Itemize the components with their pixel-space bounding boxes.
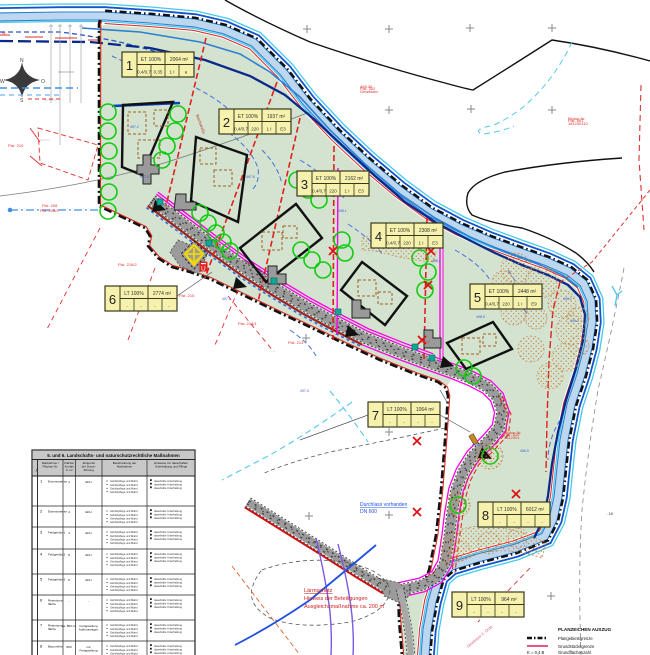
svg-text:Ausgleichsmaßnahme ca. 200 m: Ausgleichsmaßnahme ca. 200 m (304, 604, 385, 610)
svg-text:DN 600: DN 600 (360, 509, 377, 515)
svg-text:PLANZEICHEN AUSZUG: PLANZEICHEN AUSZUG (558, 627, 612, 632)
svg-text:Gehölzpflege und Mahd: Gehölzpflege und Mahd (110, 581, 138, 585)
svg-text:3: 3 (301, 177, 308, 192)
svg-text:dauerhafte Unterhaltung: dauerhafte Unterhaltung (154, 648, 183, 652)
svg-text:Gehölzpflege und Mahd: Gehölzpflege und Mahd (110, 602, 138, 606)
svg-text:1937 m²: 1937 m² (267, 114, 286, 120)
svg-text:EFH: EFH (86, 510, 92, 514)
svg-text:dauerhafte Unterhaltung: dauerhafte Unterhaltung (154, 577, 183, 581)
svg-text:1812301: 1812301 (504, 435, 520, 440)
svg-text:Gehölzpflege und Mahd: Gehölzpflege und Mahd (110, 630, 138, 634)
svg-text:Flächen-Nr.: Flächen-Nr. (42, 464, 58, 468)
svg-text:220: 220 (403, 241, 411, 246)
svg-text:964 m²: 964 m² (501, 597, 517, 603)
svg-text:Gehölzpflege und Mahd: Gehölzpflege und Mahd (110, 490, 138, 494)
svg-text:-: - (88, 599, 89, 603)
svg-text:Lärmschutz: Lärmschutz (304, 588, 333, 594)
svg-text:2064 m²: 2064 m² (170, 57, 189, 63)
svg-text:Gehölzpflege und Mahd: Gehölzpflege und Mahd (110, 584, 138, 588)
svg-text:Gehölzpflege und Mahd: Gehölzpflege und Mahd (110, 483, 138, 487)
svg-text:Gehölzpflege und Mahd: Gehölzpflege und Mahd (110, 609, 138, 613)
svg-text:497.5: 497.5 (140, 175, 149, 179)
svg-text:497.1: 497.1 (222, 297, 231, 301)
svg-text:EFH: EFH (86, 578, 92, 582)
svg-text:496.9: 496.9 (520, 449, 529, 453)
svg-text:LT 100%: LT 100% (471, 597, 491, 603)
svg-text:Hinweis der Beteiligungen: Hinweis der Beteiligungen (304, 596, 368, 602)
svg-text:498.1: 498.1 (338, 209, 347, 213)
svg-text:dauerhafte Unterhaltung: dauerhafte Unterhaltung (154, 486, 183, 490)
svg-text:Außenanlagen: Außenanlagen (79, 627, 99, 631)
svg-text:Gehölzpflege und Mahd: Gehölzpflege und Mahd (110, 530, 138, 534)
svg-text:2774 m²: 2774 m² (153, 291, 172, 297)
svg-text:Gehölzpflege und Mahd: Gehölzpflege und Mahd (110, 605, 138, 609)
svg-text:Grundflächenzahl: Grundflächenzahl (558, 650, 591, 655)
svg-text:N: N (20, 58, 24, 64)
svg-text:1 I: 1 I (418, 241, 423, 246)
svg-text:0,4/0,7: 0,4/0,7 (234, 127, 248, 132)
svg-text:ET 100%: ET 100% (489, 289, 510, 295)
svg-text:dauerhafte Unterhaltung: dauerhafte Unterhaltung (154, 644, 183, 648)
svg-text:Gehölzpflege und Mahd: Gehölzpflege und Mahd (110, 623, 138, 627)
svg-text:W: W (0, 79, 5, 85)
svg-text:1: 1 (126, 58, 133, 73)
svg-text:9: 9 (456, 598, 463, 613)
svg-text:Gehölzpflege und Mahd: Gehölzpflege und Mahd (110, 634, 138, 638)
svg-text:Plangebietsgrenze: Plangebietsgrenze (558, 636, 593, 641)
svg-text:E3: E3 (280, 127, 286, 132)
svg-text:Flst. 208: Flst. 208 (42, 203, 58, 208)
svg-text:Feldgehölz 3: Feldgehölz 3 (48, 578, 66, 582)
svg-text:Gehölzpflege und Mahd: Gehölzpflege und Mahd (110, 479, 138, 483)
svg-text:220: 220 (251, 127, 259, 132)
svg-text:fläche: fläche (48, 602, 56, 606)
svg-text:EFH: EFH (86, 531, 92, 535)
svg-text:EFH: EFH (86, 553, 92, 557)
svg-text:LT 100%: LT 100% (124, 291, 144, 297)
svg-text:Feldgehölz 1: Feldgehölz 1 (48, 531, 66, 535)
svg-text:ET 100%: ET 100% (316, 176, 337, 182)
svg-text:Bp: Bp (2, 31, 6, 35)
svg-text:dauerhafte Unterhaltung: dauerhafte Unterhaltung (154, 623, 183, 627)
svg-text:2308 m²: 2308 m² (419, 228, 438, 234)
svg-text:LT 100%: LT 100% (497, 507, 517, 513)
svg-text:E3: E3 (358, 189, 364, 194)
svg-text:Flst. 208/2: Flst. 208/2 (40, 208, 59, 213)
svg-text:Durchlass vorhanden: Durchlass vorhanden (360, 502, 407, 508)
svg-text:0,4/0,7: 0,4/0,7 (312, 189, 326, 194)
svg-text:-: - (69, 599, 70, 603)
svg-text:2162 m²: 2162 m² (345, 176, 364, 182)
svg-text:dauerhafte Unterhaltung: dauerhafte Unterhaltung (154, 559, 183, 563)
svg-text:Nr.: Nr. (35, 468, 39, 472)
svg-text:dauerhafte Unterhaltung: dauerhafte Unterhaltung (154, 537, 183, 541)
svg-text:Flst. 215: Flst. 215 (179, 293, 195, 298)
svg-text:Feldgehölz 2: Feldgehölz 2 (48, 553, 66, 557)
svg-text:1 I: 1 I (169, 70, 174, 75)
svg-text:EFH: EFH (86, 480, 92, 484)
svg-text:in m²: in m² (66, 468, 73, 472)
svg-text:dauerhafte Unterhaltung: dauerhafte Unterhaltung (154, 513, 183, 517)
svg-text:498.4: 498.4 (432, 259, 441, 263)
svg-text:6012 m²: 6012 m² (526, 507, 545, 513)
svg-text:ET 100%: ET 100% (390, 228, 411, 234)
svg-text:dauerhafte Unterhaltung: dauerhafte Unterhaltung (154, 509, 183, 513)
svg-text:führung: führung (84, 468, 95, 472)
svg-text:dauerhafte Unterhaltung: dauerhafte Unterhaltung (154, 627, 183, 631)
svg-text:0,35: 0,35 (154, 70, 163, 75)
svg-text:Maßnahme: Maßnahme (117, 464, 133, 468)
svg-text:E9: E9 (531, 302, 537, 307)
svg-text:7: 7 (372, 408, 379, 423)
svg-text:dauerhafte Unterhaltung: dauerhafte Unterhaltung (154, 552, 183, 556)
svg-text:fläche: fläche (48, 627, 56, 631)
svg-text:0,4/0,7: 0,4/0,7 (137, 70, 151, 75)
svg-text:499.2: 499.2 (563, 297, 572, 301)
svg-text:1 I: 1 I (344, 189, 349, 194)
svg-text:Gehölzpflege und Mahd: Gehölzpflege und Mahd (110, 556, 138, 560)
svg-text:Fertigstellung: Fertigstellung (79, 648, 97, 652)
svg-text:Gehölzpflege und Mahd: Gehölzpflege und Mahd (110, 598, 138, 602)
svg-text:2: 2 (223, 115, 230, 130)
svg-text:1064 m²: 1064 m² (416, 407, 435, 413)
svg-text:dauerhafte Unterhaltung: dauerhafte Unterhaltung (154, 598, 183, 602)
svg-text:O: O (41, 79, 45, 85)
svg-text:Flst. 213: Flst. 213 (288, 340, 304, 345)
svg-text:496.8: 496.8 (472, 443, 481, 447)
svg-text:Gehölzpflege und Mahd: Gehölzpflege und Mahd (110, 520, 138, 524)
svg-text:Gehölzpflege und Mahd: Gehölzpflege und Mahd (110, 627, 138, 631)
svg-text:ca. 850 m²: ca. 850 m² (62, 624, 76, 628)
svg-text:- 18: - 18 (606, 511, 614, 516)
svg-text:0,4/0,7: 0,4/0,7 (485, 302, 499, 307)
svg-text:dauerhafte Unterhaltung: dauerhafte Unterhaltung (154, 479, 183, 483)
svg-text:499.1: 499.1 (420, 339, 431, 344)
svg-text:Gehölzpflege und Mahd: Gehölzpflege und Mahd (110, 509, 138, 513)
svg-text:dauerhafte Unterhaltung: dauerhafte Unterhaltung (154, 530, 183, 534)
svg-text:1 I: 1 I (517, 302, 522, 307)
svg-text:498.9: 498.9 (476, 315, 485, 319)
svg-text:Gehölzpflege und Mahd: Gehölzpflege und Mahd (110, 563, 138, 567)
svg-text:Extensivwiese: Extensivwiese (48, 480, 67, 484)
svg-text:8: 8 (482, 508, 489, 523)
svg-text:Extensivwiese: Extensivwiese (48, 510, 67, 514)
svg-text:dauerhafte Unterhaltung: dauerhafte Unterhaltung (154, 602, 183, 606)
svg-text:Gehölzpflege und Mahd: Gehölzpflege und Mahd (110, 644, 138, 648)
svg-text:220: 220 (329, 189, 337, 194)
svg-text:0,4/0,7: 0,4/0,7 (386, 241, 400, 246)
svg-text:5: 5 (474, 290, 481, 305)
svg-text:K = 0,4 B: K = 0,4 B (527, 650, 545, 655)
svg-text:Baumreihe: Baumreihe (48, 645, 63, 649)
svg-text:dauerhafte Unterhaltung: dauerhafte Unterhaltung (154, 556, 183, 560)
svg-text:2448 m²: 2448 m² (518, 289, 537, 295)
svg-text:181230110: 181230110 (568, 121, 589, 126)
svg-text:dauerhafte Unterhaltung: dauerhafte Unterhaltung (154, 581, 183, 585)
svg-text:ET 100%: ET 100% (141, 57, 162, 63)
svg-text:Grundstücksgrenze: Grundstücksgrenze (558, 644, 595, 649)
svg-text:dauerhafte Unterhaltung: dauerhafte Unterhaltung (154, 483, 183, 487)
svg-text:220: 220 (502, 302, 510, 307)
svg-text:Gehölzpflege und Mahd: Gehölzpflege und Mahd (110, 648, 138, 652)
svg-text:Gehölzpflege und Mahd: Gehölzpflege und Mahd (110, 588, 138, 592)
svg-text:Gehölzpflege und Mahd: Gehölzpflege und Mahd (110, 651, 138, 655)
svg-text:890: 890 (66, 645, 71, 649)
svg-text:U: U (201, 266, 206, 273)
svg-text:Flst. 216/2: Flst. 216/2 (118, 262, 137, 267)
svg-text:dauerhafte Unterhaltung: dauerhafte Unterhaltung (154, 584, 183, 588)
svg-text:LT 100%: LT 100% (387, 407, 407, 413)
svg-text:dauerhafte Unterhaltung: dauerhafte Unterhaltung (154, 516, 183, 520)
svg-text:6: 6 (109, 292, 116, 307)
svg-text:497.2: 497.2 (130, 125, 139, 129)
svg-text:Gewässer: Gewässer (360, 89, 379, 94)
svg-text:Gehölzpflege und Mahd: Gehölzpflege und Mahd (110, 516, 138, 520)
svg-text:ET 100%: ET 100% (238, 114, 259, 120)
svg-text:Gehölzpflege und Mahd: Gehölzpflege und Mahd (110, 537, 138, 541)
svg-text:1 I: 1 I (266, 127, 271, 132)
svg-text:Gehölzpflege und Mahd: Gehölzpflege und Mahd (110, 513, 138, 517)
svg-text:Flst. 214/1: Flst. 214/1 (238, 321, 257, 326)
svg-text:497.4: 497.4 (300, 389, 309, 393)
svg-text:Gehölzpflege und Mahd: Gehölzpflege und Mahd (110, 534, 138, 538)
svg-text:Gehölzpflege und Mahd: Gehölzpflege und Mahd (110, 486, 138, 490)
svg-text:dauerhafte Unterhaltung: dauerhafte Unterhaltung (154, 534, 183, 538)
svg-text:497.8: 497.8 (246, 175, 255, 179)
svg-text:4: 4 (375, 229, 382, 244)
svg-text:dauerhafte Unterhaltung: dauerhafte Unterhaltung (154, 605, 183, 609)
svg-text:Unterhaltung und Pflege: Unterhaltung und Pflege (155, 464, 188, 468)
svg-text:Gehölzpflege und Mahd: Gehölzpflege und Mahd (110, 577, 138, 581)
svg-text:Gehölzpflege und Mahd: Gehölzpflege und Mahd (110, 541, 138, 545)
svg-text:Gehölzpflege und Mahd: Gehölzpflege und Mahd (110, 552, 138, 556)
svg-text:Gehölzpflege und Mahd: Gehölzpflege und Mahd (110, 559, 138, 563)
svg-text:E3: E3 (432, 241, 438, 246)
svg-text:5. und 6. Landschafts- und nat: 5. und 6. Landschafts- und naturschutzre… (47, 453, 180, 458)
svg-text:dauerhafte Unterhaltung: dauerhafte Unterhaltung (154, 651, 183, 655)
svg-text:499.0: 499.0 (570, 319, 579, 323)
svg-text:Flst. 210: Flst. 210 (8, 143, 24, 148)
svg-text:dauerhafte Unterhaltung: dauerhafte Unterhaltung (154, 630, 183, 634)
